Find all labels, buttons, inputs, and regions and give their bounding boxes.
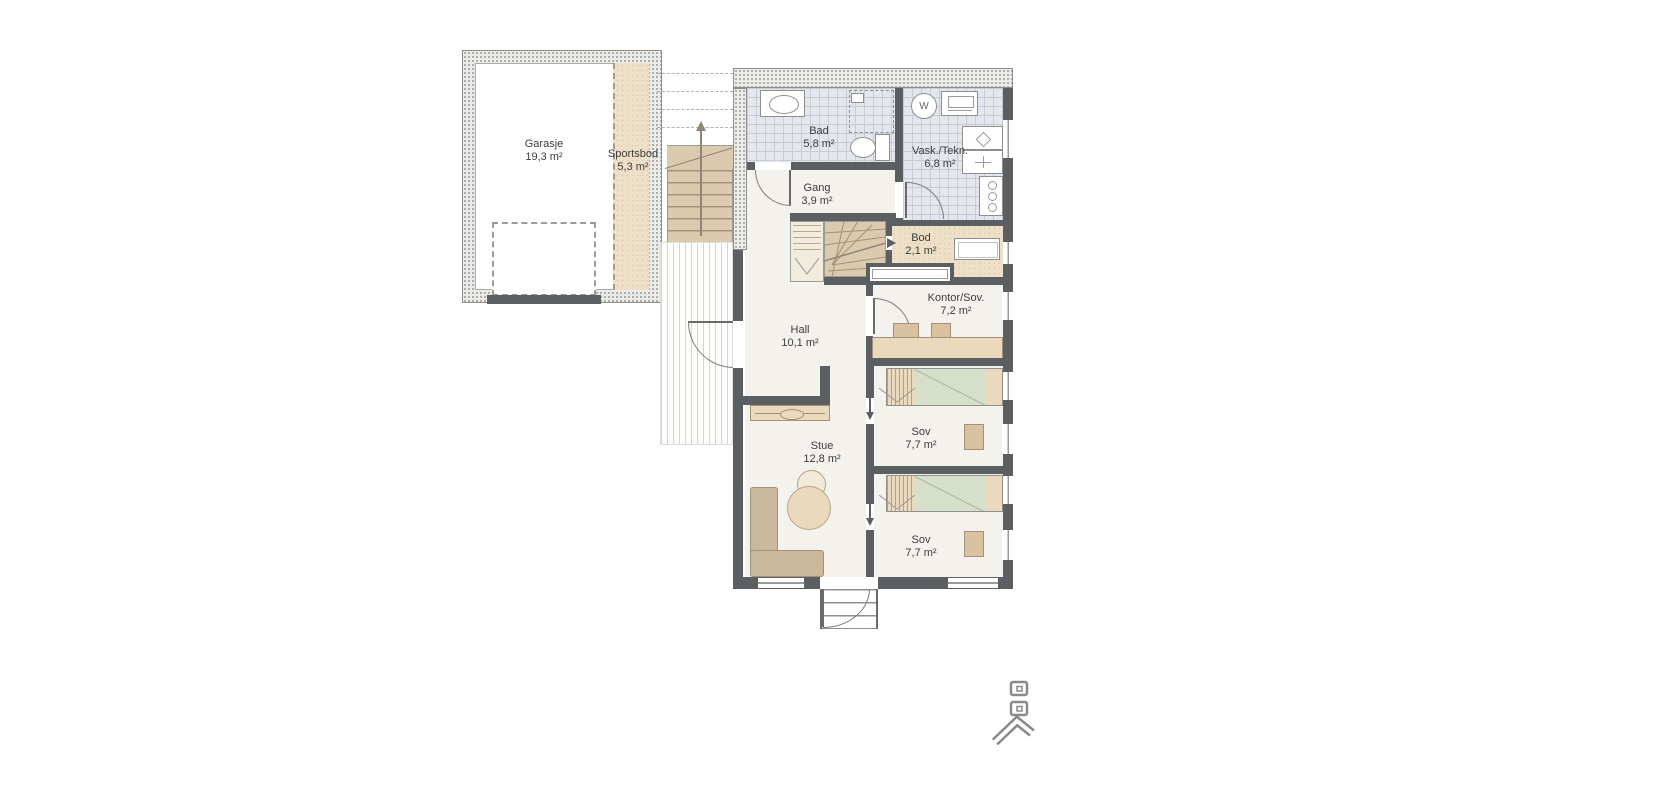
house-wall-top xyxy=(733,68,1013,88)
window xyxy=(948,578,998,588)
stair-arrow-head-icon xyxy=(696,121,706,131)
window xyxy=(1002,372,1014,400)
house-wall-left-upper xyxy=(733,88,747,250)
washing-machine-icon: W xyxy=(911,93,937,119)
sideboard xyxy=(750,405,830,421)
wardrobe-symbol-icon xyxy=(795,258,819,276)
counter-unit-icon xyxy=(962,150,1003,174)
round-table xyxy=(787,486,831,530)
floor-plan-canvas: W xyxy=(0,0,1670,800)
bed-duvet xyxy=(915,369,985,405)
room-label-kontor-sov: Kontor/Sov. 7,2 m² xyxy=(928,292,985,318)
room-area: 5,3 m² xyxy=(608,161,658,174)
room-area: 3,9 m² xyxy=(801,195,832,208)
hall-stue-wall xyxy=(743,396,830,405)
nightstand xyxy=(964,424,984,450)
toilet-bowl-icon xyxy=(850,137,876,158)
window xyxy=(1002,530,1014,560)
shower-drain-icon xyxy=(851,93,864,103)
room-area: 2,1 m² xyxy=(905,245,936,258)
stair-direction-arrow xyxy=(700,130,702,236)
room-label-sov1: Sov 7,7 m² xyxy=(905,426,936,452)
room-name: Vask./Tekn. xyxy=(912,145,968,158)
room-area: 7,7 m² xyxy=(905,547,936,560)
room-area: 5,8 m² xyxy=(803,138,834,151)
sov1-door-arrow-head-icon xyxy=(866,412,874,420)
desk-chair xyxy=(893,323,919,338)
room-area: 19,3 m² xyxy=(525,151,564,164)
wardrobe-symbol-icon xyxy=(879,388,915,404)
gang-bottom-wall xyxy=(790,213,896,221)
sov2-door-arrow xyxy=(869,503,871,519)
bad-door-opening xyxy=(755,162,791,170)
garage-door-outline xyxy=(492,222,596,296)
sink-icon xyxy=(760,90,805,117)
window xyxy=(1002,292,1014,320)
hall-stue-wall-stub xyxy=(820,366,830,398)
room-name: Gang xyxy=(801,182,832,195)
wardrobe-symbol-icon xyxy=(879,495,915,511)
hall-closet xyxy=(790,221,824,282)
window xyxy=(1002,424,1014,454)
stair-niche xyxy=(866,263,954,285)
house-wall-left-lower xyxy=(733,250,743,577)
kontor-sov1-wall xyxy=(866,358,1013,366)
room-name: Bad xyxy=(803,125,834,138)
boiler-icon xyxy=(979,176,1003,216)
sov2-door-arrow-head-icon xyxy=(866,518,874,526)
compass-logo-icon xyxy=(990,680,1040,752)
counter-unit-icon xyxy=(962,126,1003,150)
toilet-tank-icon xyxy=(875,134,890,161)
room-label-sportsbod: Sportsbod 5,3 m² xyxy=(608,148,658,174)
room-name: Bod xyxy=(905,232,936,245)
roof-overhang-outline xyxy=(657,73,733,145)
sov1-sov2-wall xyxy=(866,466,1013,474)
garage-door-sill xyxy=(487,295,601,304)
bod-entry-arrow-icon xyxy=(887,238,896,248)
room-label-gang: Gang 3,9 m² xyxy=(801,182,832,208)
room-name: Garasje xyxy=(525,138,564,151)
window xyxy=(758,578,804,588)
room-area: 6,8 m² xyxy=(912,158,968,171)
room-name: Hall xyxy=(781,324,818,337)
room-label-garasje: Garasje 19,3 m² xyxy=(525,138,564,164)
room-area: 7,7 m² xyxy=(905,439,936,452)
sofa xyxy=(750,550,824,577)
sportsbod-floor xyxy=(613,63,649,290)
bed-duvet xyxy=(915,476,985,511)
room-name: Kontor/Sov. xyxy=(928,292,985,305)
room-label-vask-tekn: Vask./Tekn. 6,8 m² xyxy=(912,145,968,171)
room-name: Sov xyxy=(905,534,936,547)
room-label-bod: Bod 2,1 m² xyxy=(905,232,936,258)
dryer-icon xyxy=(941,91,978,116)
washing-machine-letter: W xyxy=(919,101,928,112)
room-name: Sportsbod xyxy=(608,148,658,161)
nightstand xyxy=(964,531,984,557)
room-area: 12,8 m² xyxy=(803,453,840,466)
vask-door-opening xyxy=(895,182,903,218)
room-area: 7,2 m² xyxy=(928,305,985,318)
sov1-door-arrow xyxy=(869,397,871,413)
desk-chair xyxy=(931,323,951,338)
room-label-hall: Hall 10,1 m² xyxy=(781,324,818,350)
window xyxy=(1002,476,1014,504)
room-name: Stue xyxy=(803,440,840,453)
room-label-stue: Stue 12,8 m² xyxy=(803,440,840,466)
window xyxy=(1002,242,1014,264)
room-area: 10,1 m² xyxy=(781,337,818,350)
room-label-bad: Bad 5,8 m² xyxy=(803,125,834,151)
window xyxy=(1002,120,1014,158)
entrance-opening xyxy=(733,321,743,368)
room-label-sov2: Sov 7,7 m² xyxy=(905,534,936,560)
rear-door-opening xyxy=(820,577,878,589)
room-name: Sov xyxy=(905,426,936,439)
bod-shelf xyxy=(954,238,1000,260)
kontor-door-opening xyxy=(866,296,873,336)
